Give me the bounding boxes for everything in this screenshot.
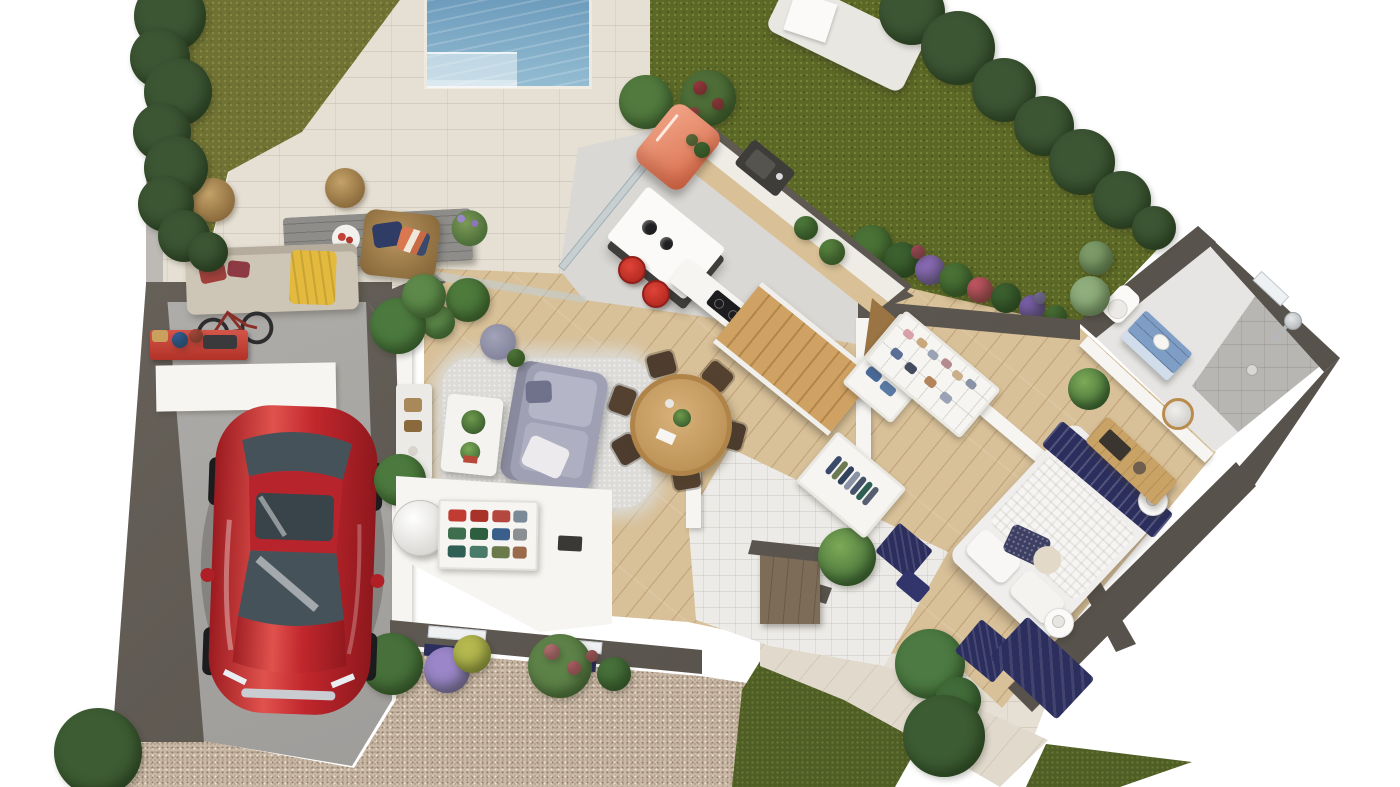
storage-shelf	[437, 499, 538, 571]
plant	[904, 360, 919, 375]
plant	[901, 327, 915, 340]
plant	[448, 545, 466, 557]
bedside-lamp-2	[1052, 615, 1065, 628]
plant	[915, 336, 929, 349]
centerpiece-plant	[673, 409, 691, 427]
plant	[939, 390, 954, 405]
plant	[513, 528, 527, 540]
buddha-figure	[1130, 459, 1148, 477]
plant	[492, 528, 510, 540]
plant	[890, 346, 905, 361]
plant	[513, 546, 527, 558]
bedroom-plant	[1068, 368, 1110, 410]
plant	[448, 527, 466, 539]
plant	[492, 510, 510, 522]
plant	[470, 546, 488, 558]
tv-screen	[1098, 429, 1132, 462]
plant	[448, 509, 466, 521]
plant	[513, 510, 527, 522]
plant	[926, 348, 940, 361]
plant	[470, 528, 488, 540]
floorplan-3d-render	[0, 0, 1400, 787]
dining-table	[630, 374, 732, 476]
desk-printer	[558, 535, 583, 551]
plant	[923, 374, 938, 389]
plant	[492, 546, 510, 558]
plant	[470, 510, 488, 522]
plant	[939, 357, 953, 370]
vanity-sink	[1150, 331, 1173, 354]
white-card	[656, 428, 677, 445]
plant	[964, 377, 978, 390]
shower-drain	[1246, 364, 1258, 376]
plant	[950, 368, 964, 381]
shower-head	[1284, 312, 1302, 330]
entry-plant	[818, 528, 876, 586]
bird-figurine	[665, 399, 674, 408]
round-mirror	[1162, 398, 1194, 430]
